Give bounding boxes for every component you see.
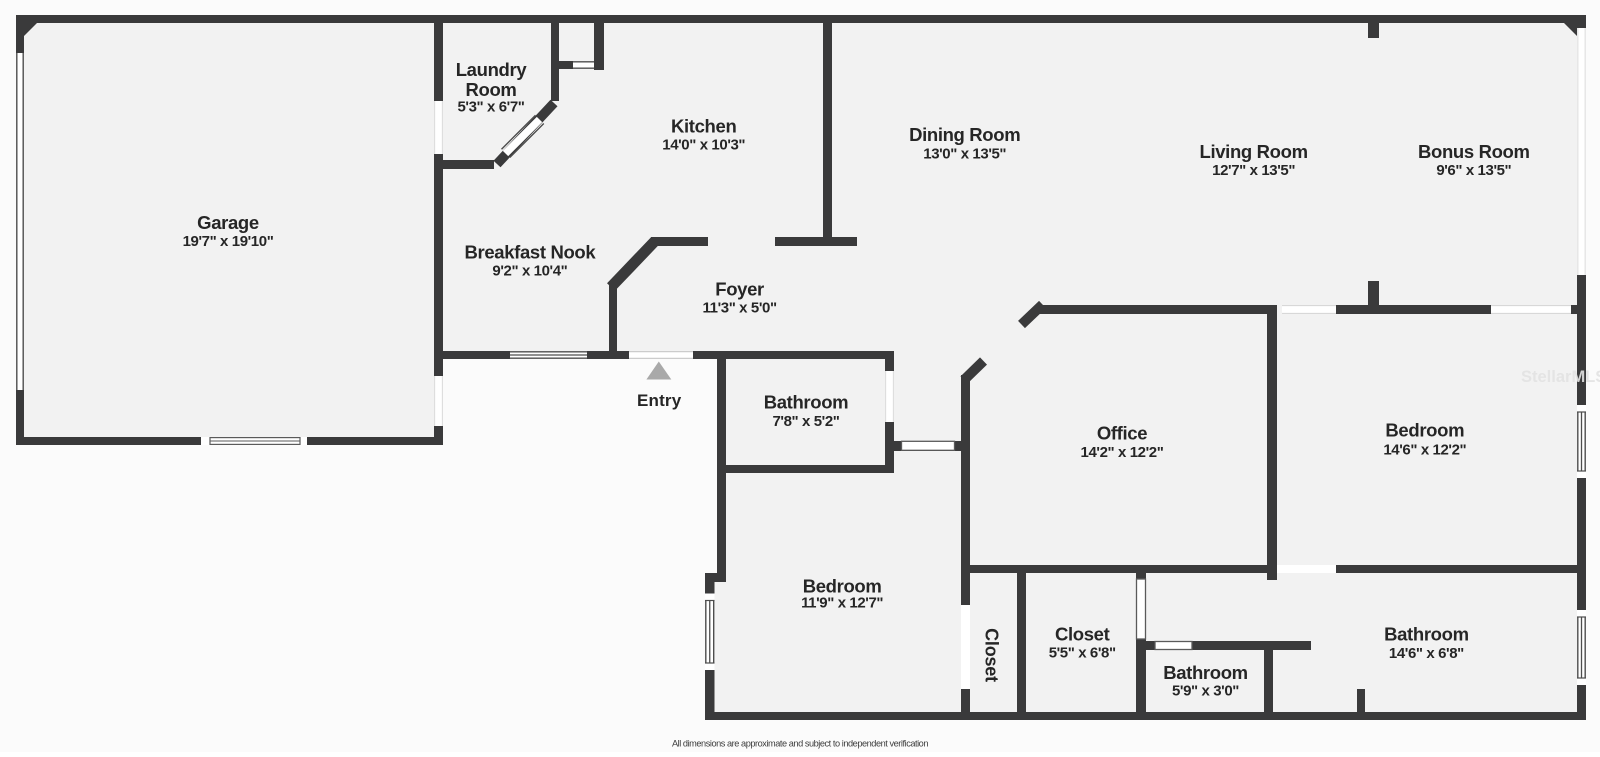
svg-text:Closet: Closet	[982, 628, 1002, 682]
svg-text:Office: Office	[1097, 423, 1147, 444]
svg-text:5'5" x 6'8": 5'5" x 6'8"	[1049, 645, 1116, 662]
svg-text:Bathroom: Bathroom	[1163, 662, 1248, 683]
svg-text:11'9" x 12'7": 11'9" x 12'7"	[801, 595, 883, 612]
svg-text:19'7" x 19'10": 19'7" x 19'10"	[183, 233, 274, 250]
svg-text:Bedroom: Bedroom	[1385, 420, 1464, 441]
svg-text:9'6" x 13'5": 9'6" x 13'5"	[1436, 162, 1511, 179]
svg-text:Bathroom: Bathroom	[1384, 624, 1469, 645]
svg-text:Breakfast Nook: Breakfast Nook	[464, 242, 596, 263]
svg-text:Laundry: Laundry	[456, 59, 528, 80]
svg-text:StellarMLS: StellarMLS	[1521, 368, 1600, 386]
svg-text:Bonus Room: Bonus Room	[1418, 141, 1530, 162]
svg-text:Entry: Entry	[637, 391, 682, 410]
svg-text:7'8" x 5'2": 7'8" x 5'2"	[772, 413, 839, 430]
svg-text:12'7" x 13'5": 12'7" x 13'5"	[1212, 162, 1295, 179]
svg-text:11'3" x 5'0": 11'3" x 5'0"	[703, 300, 777, 317]
svg-text:Living Room: Living Room	[1200, 141, 1308, 162]
svg-text:14'6" x 12'2": 14'6" x 12'2"	[1383, 442, 1466, 459]
svg-text:Bathroom: Bathroom	[764, 392, 849, 413]
svg-text:14'2" x 12'2": 14'2" x 12'2"	[1081, 444, 1164, 461]
svg-text:14'6" x 6'8": 14'6" x 6'8"	[1389, 645, 1464, 662]
svg-text:5'3" x 6'7": 5'3" x 6'7"	[457, 99, 524, 116]
svg-text:Closet: Closet	[1055, 624, 1110, 645]
svg-text:Room: Room	[465, 79, 516, 100]
svg-text:All dimensions are approximate: All dimensions are approximate and subje…	[672, 739, 928, 749]
svg-text:13'0" x 13'5": 13'0" x 13'5"	[923, 146, 1006, 163]
svg-text:14'0" x 10'3": 14'0" x 10'3"	[662, 137, 745, 154]
svg-text:Kitchen: Kitchen	[671, 116, 736, 137]
svg-text:Foyer: Foyer	[715, 279, 764, 300]
svg-text:Dining Room: Dining Room	[909, 124, 1020, 145]
svg-text:5'9" x 3'0": 5'9" x 3'0"	[1172, 683, 1239, 700]
svg-text:Bedroom: Bedroom	[803, 576, 882, 597]
svg-text:9'2" x 10'4": 9'2" x 10'4"	[492, 263, 567, 280]
svg-text:Garage: Garage	[197, 212, 259, 233]
